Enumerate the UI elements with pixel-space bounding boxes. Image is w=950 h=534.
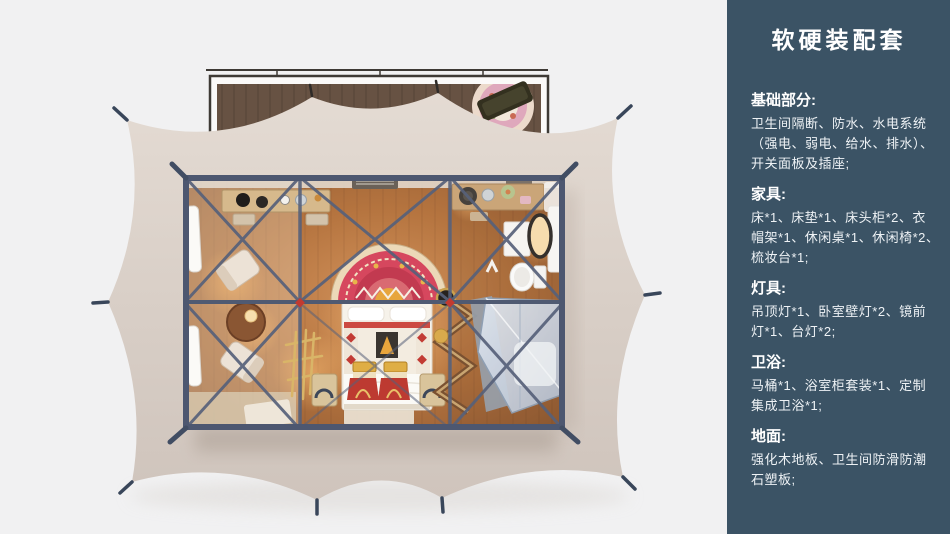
section-lighting-body: 吊顶灯*1、卧室壁灯*2、镜前 灯*1、台灯*2; [751, 302, 941, 342]
section-flooring-body: 强化木地板、卫生间防滑防潮 石塑板; [751, 450, 941, 490]
room [170, 164, 578, 442]
spec-sidebar: 软硬装配套 基础部分: 卫生间隔断、防水、水电系统 （强电、弱电、给水、排水）、… [727, 0, 950, 534]
quilt [344, 322, 430, 328]
section-basics-body: 卫生间隔断、防水、水电系统 （强电、弱电、给水、排水）、 开关面板及插座; [751, 114, 941, 174]
section-furniture-body: 床*1、床垫*1、床头柜*2、衣 帽架*1、休闲桌*1、休闲椅*2、 梳妆台*1… [751, 208, 941, 268]
section-lighting-heading: 灯具: [751, 278, 941, 300]
kettle [482, 189, 494, 201]
mirror [529, 215, 551, 257]
section-furniture-heading: 家具: [751, 184, 941, 206]
pillow [348, 307, 384, 321]
section-lighting: 灯具: 吊顶灯*1、卧室壁灯*2、镜前 灯*1、台灯*2; [751, 278, 941, 342]
section-furniture: 家具: 床*1、床垫*1、床头柜*2、衣 帽架*1、休闲桌*1、休闲椅*2、 梳… [751, 184, 941, 268]
table-lamp [245, 310, 257, 322]
ground-shadow [130, 480, 630, 512]
floor-mat-runner [344, 408, 414, 426]
side-table [227, 303, 265, 341]
floorplan-render [0, 0, 727, 534]
hat [236, 193, 250, 207]
section-flooring: 地面: 强化木地板、卫生间防滑防潮 石塑板; [751, 426, 941, 490]
vanity-stool [233, 214, 255, 225]
section-bathroom-body: 马桶*1、浴室柜套装*1、定制 集成卫浴*1; [751, 376, 941, 416]
section-bathroom-heading: 卫浴: [751, 352, 941, 374]
pillow [390, 307, 426, 321]
hat [256, 196, 268, 208]
section-basics-heading: 基础部分: [751, 90, 941, 112]
section-bathroom: 卫浴: 马桶*1、浴室柜套装*1、定制 集成卫浴*1; [751, 352, 941, 416]
vanity-stool [306, 214, 328, 225]
gold-stool [434, 329, 448, 343]
floorplan-panel [0, 0, 727, 534]
sidebar-title: 软硬装配套 [751, 26, 927, 54]
section-flooring-heading: 地面: [751, 426, 941, 448]
towel [520, 196, 531, 204]
section-basics: 基础部分: 卫生间隔断、防水、水电系统 （强电、弱电、给水、排水）、 开关面板及… [751, 90, 941, 174]
screenshot-root: 软硬装配套 基础部分: 卫生间隔断、防水、水电系统 （强电、弱电、给水、排水）、… [0, 0, 950, 534]
